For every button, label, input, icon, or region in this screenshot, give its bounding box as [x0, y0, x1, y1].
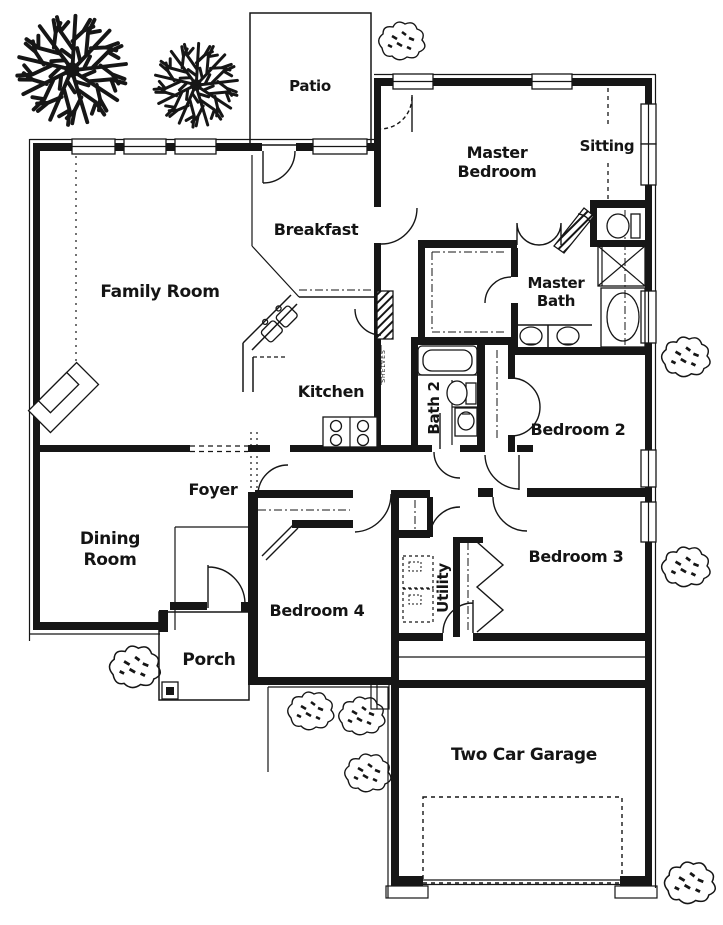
shrub-icon — [662, 547, 710, 587]
window — [641, 450, 656, 487]
toilet-icon — [447, 381, 476, 405]
room-label-bath2: Bath 2 — [425, 381, 443, 434]
sink-icon — [557, 327, 579, 345]
window — [313, 139, 367, 154]
patio-door — [263, 151, 295, 183]
room-label-garage: Two Car Garage — [451, 745, 597, 765]
room-label-patio: Patio — [289, 77, 331, 95]
window — [641, 144, 656, 185]
room-label-bedroom2: Bedroom 2 — [530, 420, 625, 439]
master-bath-double-doors — [517, 223, 561, 245]
bedroom4-closet-door — [262, 524, 298, 560]
tree-icon — [13, 13, 129, 129]
kitchen-sink-icon — [256, 300, 299, 343]
room-label-kitchen: Kitchen — [298, 382, 365, 401]
window — [124, 139, 166, 154]
sink-icon — [455, 408, 477, 436]
shower-icon — [598, 246, 645, 286]
floor-plan-canvas: Patio Master Bedroom Sitting Breakfast F… — [0, 0, 723, 925]
shrub-icon — [288, 692, 334, 730]
bedroom4-door — [355, 494, 391, 532]
shrub-icon — [665, 862, 716, 903]
walkin-closet-door — [485, 277, 511, 303]
pantry-shelves-label: SHELVES — [380, 349, 387, 383]
room-label-utility: Utility — [434, 563, 452, 613]
washer-dryer-icon — [403, 556, 433, 622]
room-label-family-room: Family Room — [100, 282, 219, 302]
room-label-sitting: Sitting — [580, 137, 635, 155]
window — [641, 104, 656, 144]
room-label-foyer: Foyer — [189, 480, 238, 499]
window — [393, 74, 433, 89]
room-label-master-bath: Master — [528, 274, 586, 292]
linen-hatch — [377, 291, 393, 339]
room-label-dining-room: Room — [84, 550, 137, 570]
room-label-master-bedroom: Master — [467, 143, 528, 162]
porch-column — [162, 682, 178, 699]
foyer-opening — [251, 432, 257, 490]
window — [641, 502, 656, 542]
room-label-porch: Porch — [182, 650, 235, 670]
bedroom2-door — [485, 455, 519, 490]
bedroom3-door — [493, 497, 527, 531]
garage-parking-area — [423, 797, 622, 883]
room-label-bedroom3: Bedroom 3 — [528, 547, 623, 566]
shrub-icon — [339, 697, 385, 735]
tree-icon — [151, 41, 240, 130]
stove-icon — [323, 417, 377, 447]
room-label-dining-room: Dining — [80, 529, 140, 549]
cased-opening — [190, 446, 248, 452]
garage-door — [423, 880, 620, 885]
dashed-swing — [380, 95, 412, 132]
window — [641, 291, 656, 343]
sink-icon — [520, 327, 542, 345]
room-label-master-bath: Bath — [537, 292, 575, 310]
window — [72, 139, 115, 154]
front-door — [208, 565, 245, 608]
shrub-icon — [110, 646, 161, 687]
bathtub-icon — [601, 288, 645, 347]
shrub-icon — [345, 754, 391, 792]
window — [175, 139, 216, 154]
utility-door — [430, 507, 460, 537]
shrub-icon — [379, 22, 425, 60]
room-label-master-bedroom: Bedroom — [458, 162, 537, 181]
bedroom3-bifold-doors — [477, 542, 503, 632]
room-label-bedroom4: Bedroom 4 — [269, 601, 364, 620]
shrub-icon — [662, 337, 710, 377]
room-label-breakfast: Breakfast — [274, 220, 359, 239]
toilet-icon — [607, 214, 640, 238]
window — [532, 74, 572, 89]
master-bedroom-door — [381, 208, 417, 244]
